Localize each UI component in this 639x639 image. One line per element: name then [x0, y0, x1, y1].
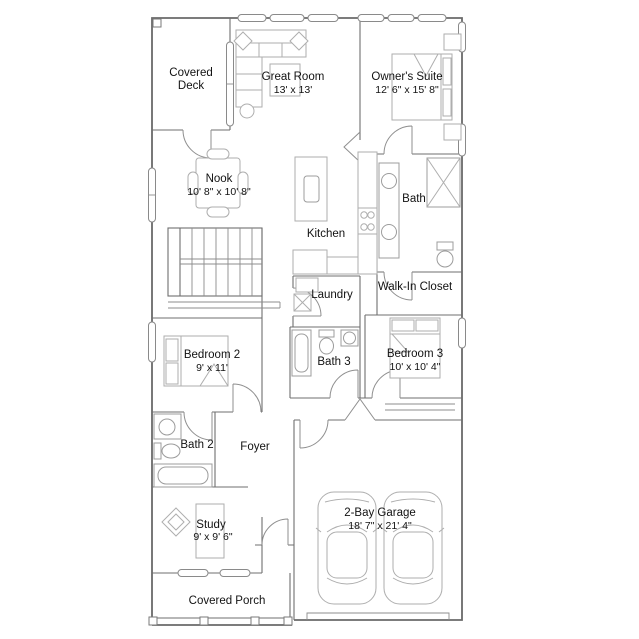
double-vanity [379, 163, 399, 258]
bedroom2-bed [164, 336, 228, 386]
room-dims-bedroom-2: 9' x 11' [196, 362, 228, 374]
room-label-kitchen: Kitchen [307, 228, 345, 240]
room-label-nook: Nook [206, 173, 233, 185]
toilet [154, 443, 180, 459]
room-label-laundry: Laundry [311, 289, 353, 301]
room-label-bath-2: Bath 2 [180, 439, 213, 451]
bathtub [292, 330, 311, 376]
room-dims-garage: 18' 7" x 21' 4" [348, 520, 412, 532]
room-label-great-room: Great Room [262, 71, 325, 83]
room-dims-bedroom-3: 10' x 10' 4" [390, 361, 441, 373]
bathtub [154, 464, 212, 487]
room-label-covered-deck-line1: Covered [169, 67, 212, 79]
vanity-sink [341, 330, 358, 346]
room-dims-nook: 10' 8" x 10' 8" [187, 186, 251, 198]
room-label-foyer: Foyer [240, 441, 270, 453]
floor-plan: Covered Deck Great Room 13' x 13' Owner'… [0, 0, 639, 639]
nightstand [444, 34, 461, 50]
range-cooktop [358, 208, 377, 234]
toilet [437, 242, 453, 267]
desk-chair [162, 508, 190, 536]
shower [427, 158, 460, 207]
room-label-bath-3: Bath 3 [317, 356, 350, 368]
closet-bifold-door [345, 399, 375, 420]
floor-plan-drawing: Covered Deck Great Room 13' x 13' Owner'… [0, 0, 639, 639]
room-label-garage: 2-Bay Garage [344, 507, 416, 519]
room-label-covered-porch: Covered Porch [189, 595, 266, 607]
room-label-study: Study [196, 519, 226, 531]
room-label-bedroom-3: Bedroom 3 [387, 348, 443, 360]
staircase [168, 228, 280, 308]
toilet [319, 330, 334, 354]
room-dims-great-room: 13' x 13' [274, 84, 312, 96]
room-label-bath: Bath [402, 193, 426, 205]
room-label-covered-deck-line2: Deck [178, 80, 204, 92]
room-label-bedroom-2: Bedroom 2 [184, 349, 240, 361]
nightstand [444, 124, 461, 140]
room-dims-study: 9' x 9' 6" [193, 531, 233, 543]
kitchen-island [295, 157, 327, 221]
vanity-sink [154, 414, 181, 439]
room-label-owners-suite: Owner's Suite [371, 71, 442, 83]
room-dims-owners-suite: 12' 6" x 15' 8" [375, 84, 439, 96]
room-label-walk-in-closet: Walk-In Closet [378, 281, 453, 293]
